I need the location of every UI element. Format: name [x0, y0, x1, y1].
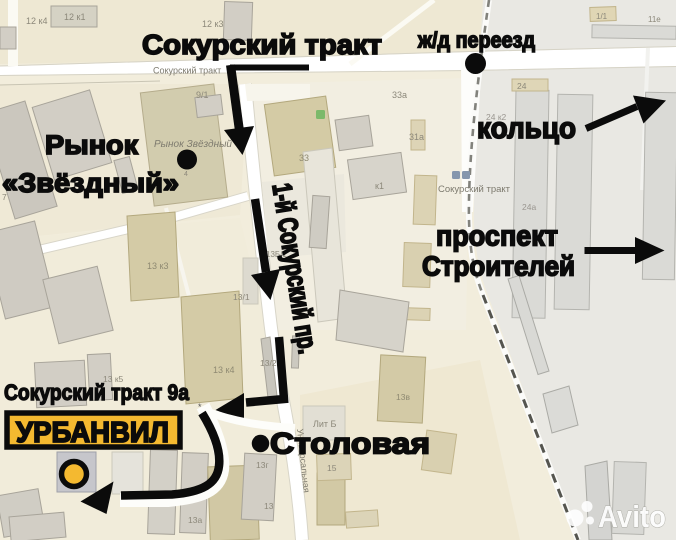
- svg-text:Рынок: Рынок: [45, 130, 139, 160]
- svg-text:12 к3: 12 к3: [202, 19, 223, 29]
- svg-text:4: 4: [184, 171, 188, 178]
- svg-text:13 к3: 13 к3: [147, 261, 168, 271]
- svg-text:24а: 24а: [522, 202, 536, 212]
- svg-text:1/1: 1/1: [596, 12, 608, 21]
- svg-text:УРБАНВИЛ: УРБАНВИЛ: [16, 417, 169, 449]
- svg-text:12 к4: 12 к4: [26, 16, 47, 26]
- svg-text:11е: 11е: [648, 15, 661, 24]
- svg-text:24: 24: [517, 81, 527, 91]
- svg-text:13/2: 13/2: [260, 358, 277, 368]
- svg-text:Сокурский тракт: Сокурский тракт: [142, 29, 382, 60]
- svg-text:13г: 13г: [256, 460, 269, 470]
- svg-text:Столовая: Столовая: [270, 428, 430, 461]
- svg-text:33: 33: [299, 153, 309, 163]
- svg-text:Сокурский тракт: Сокурский тракт: [438, 184, 511, 195]
- svg-text:проспект: проспект: [436, 221, 558, 253]
- svg-text:31а: 31а: [409, 132, 424, 142]
- svg-text:Сокурский тракт 9а: Сокурский тракт 9а: [4, 380, 190, 405]
- svg-text:13в: 13в: [396, 392, 410, 402]
- svg-text:13/1: 13/1: [233, 292, 250, 302]
- svg-text:Строителей: Строителей: [422, 251, 575, 282]
- svg-text:кольцо: кольцо: [477, 112, 576, 145]
- svg-text:12 к1: 12 к1: [64, 12, 85, 22]
- svg-text:13 к4: 13 к4: [213, 365, 234, 375]
- svg-text:33а: 33а: [392, 90, 407, 100]
- svg-text:Рынок Звёздный: Рынок Звёздный: [154, 139, 232, 150]
- svg-text:13а: 13а: [188, 515, 202, 525]
- svg-text:Сокурский тракт: Сокурский тракт: [153, 66, 221, 76]
- svg-text:Avito: Avito: [598, 499, 666, 534]
- svg-text:9/1: 9/1: [196, 90, 209, 100]
- svg-text:к1: к1: [375, 181, 384, 191]
- svg-text:«Звёздный»: «Звёздный»: [2, 168, 179, 198]
- svg-text:13: 13: [264, 501, 274, 511]
- svg-text:15: 15: [327, 463, 337, 473]
- svg-text:ж/д переезд: ж/д переезд: [417, 28, 535, 53]
